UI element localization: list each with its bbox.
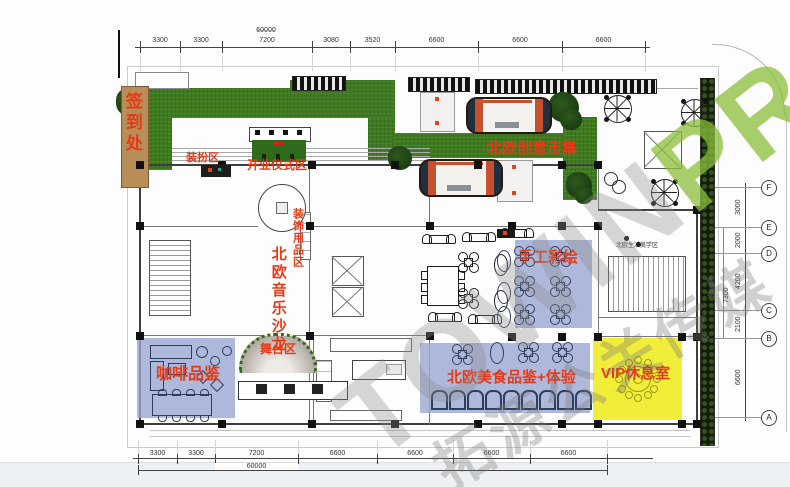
door-core [276, 202, 288, 214]
zone-label-lifestyle: 北欧生活美学区 [616, 240, 658, 249]
table [556, 310, 565, 319]
truck-roof-stripe [482, 100, 532, 103]
column [678, 333, 686, 341]
planting-bed [408, 77, 470, 92]
chair [524, 228, 534, 238]
dim-value-right: 6600 [735, 338, 742, 417]
stage-banner [274, 142, 284, 145]
dim-extension [312, 55, 313, 71]
chair [158, 389, 167, 396]
column [391, 161, 399, 169]
column [426, 332, 434, 340]
site-corner-mark [118, 30, 120, 78]
chair [486, 232, 496, 242]
coffee-machine [312, 384, 323, 394]
dim-extension [562, 55, 563, 71]
truss-light [269, 130, 274, 135]
dim-value-top: 6600 [478, 37, 562, 44]
dim-value-bottom: 6600 [530, 450, 607, 457]
staircase [149, 240, 191, 316]
chair [703, 121, 708, 126]
dim-value-bottom: 3300 [177, 450, 215, 457]
chair [172, 415, 181, 422]
dim-extension [645, 55, 646, 71]
chair [452, 312, 462, 322]
column [474, 420, 482, 428]
dim-line-top [135, 47, 650, 48]
column [558, 161, 566, 169]
column [558, 333, 566, 341]
dim-value-top: 3300 [140, 37, 180, 44]
table [464, 258, 473, 267]
column [306, 222, 314, 230]
dim-tick [607, 465, 608, 475]
planting-bed [292, 76, 346, 91]
column [308, 420, 316, 428]
round-table [196, 346, 208, 358]
column [306, 332, 314, 340]
vip-chair [650, 385, 658, 393]
dim-line-right [745, 183, 746, 421]
column [391, 420, 399, 428]
coffee-machine [284, 384, 295, 394]
column [558, 420, 566, 428]
dim-value-bottom: 6600 [377, 450, 453, 457]
grid-bubble-B: B [761, 331, 777, 347]
chair [604, 95, 609, 100]
long-table [427, 266, 459, 306]
wall [304, 226, 598, 227]
column [693, 420, 701, 428]
truck-counter [495, 122, 519, 128]
wall [598, 164, 599, 210]
chair [703, 99, 708, 104]
oval-table [497, 282, 511, 304]
dim-value-bottom: 6600 [453, 450, 530, 457]
oval-table [497, 250, 511, 272]
truck-counter [447, 185, 471, 191]
dim-value-right: 4200 [735, 253, 742, 310]
chair [172, 389, 181, 396]
counter-marker [503, 231, 507, 235]
booth-seat [449, 390, 466, 410]
column [558, 222, 566, 230]
staircase [608, 256, 686, 312]
column [594, 333, 602, 341]
chair [673, 179, 678, 184]
exterior-step [150, 430, 690, 431]
dim-total-top: 60000 [236, 27, 296, 34]
column [474, 161, 482, 169]
table [558, 348, 567, 357]
chair [421, 283, 428, 292]
oval-table [490, 342, 504, 364]
chair [462, 232, 472, 242]
dim-value-right: 2100 [735, 310, 742, 338]
booth-marker [512, 191, 516, 195]
chair [651, 179, 656, 184]
wall [598, 209, 698, 211]
grid-bubble-C: C [761, 303, 777, 319]
chair [468, 314, 478, 324]
table [520, 282, 529, 291]
zone-label-sign-in: 签到处 [123, 92, 141, 155]
dim-tick [138, 465, 139, 475]
counter-marker [218, 168, 221, 171]
table [464, 294, 473, 303]
vip-chair [625, 391, 633, 399]
dim-extension [607, 440, 608, 454]
round-table [222, 346, 232, 356]
grid-bubble-A: A [761, 410, 777, 426]
floor-plan: 3300330072003080352066006600660060000330… [0, 0, 790, 487]
dim-extension [478, 55, 479, 71]
island-sink [386, 364, 402, 375]
column [136, 222, 144, 230]
column [508, 333, 516, 341]
zone-label-hand-painting: 手工彩绘 [518, 250, 578, 266]
truss-light [255, 130, 260, 135]
dim-extension [222, 55, 223, 71]
table [458, 350, 467, 359]
grid-bubble-F: F [761, 180, 777, 196]
vip-chair [634, 394, 642, 402]
column [218, 420, 226, 428]
chair [200, 389, 209, 396]
booth-seat [503, 390, 520, 410]
booth-seat [539, 390, 556, 410]
dim-value-bottom: 7200 [215, 450, 298, 457]
booth-marker [512, 165, 516, 169]
column [594, 161, 602, 169]
booth-seat [467, 390, 484, 410]
booth-seat [557, 390, 574, 410]
dim-value-top: 6600 [562, 37, 645, 44]
vip-chair [618, 385, 626, 393]
booth-marker [435, 97, 439, 101]
vip-chair [644, 391, 652, 399]
chair [200, 415, 209, 422]
zone-label-creative-market: 北欧创意市集 [487, 141, 577, 157]
column [693, 333, 701, 341]
dim-tick [645, 41, 646, 53]
booth-seat [431, 390, 448, 410]
chair [681, 121, 686, 126]
page-bottom-strip [0, 462, 790, 487]
dim-value-bottom: 3300 [138, 450, 177, 457]
dim-total-bottom: 60000 [215, 463, 298, 470]
chair [422, 234, 432, 244]
chair [604, 117, 609, 122]
dim-value-right: 2000 [735, 227, 742, 253]
sofa [150, 345, 192, 359]
site-edge-right [786, 112, 787, 432]
hedge-strip [700, 78, 715, 446]
table [556, 282, 565, 291]
truss-light [283, 130, 288, 135]
dim-value-bottom: 6600 [298, 450, 377, 457]
chair [651, 201, 656, 206]
grid-bubble-E: E [761, 220, 777, 236]
chair [158, 415, 167, 422]
chair [626, 95, 631, 100]
zone-label-stage: 舞台区 [260, 343, 296, 356]
zone-label-food-tasting: 北欧美食品鉴+体验 [447, 370, 576, 386]
wall [598, 317, 697, 318]
chair [626, 117, 631, 122]
tree [575, 186, 593, 204]
zone-label-dress-up: 装扮区 [186, 153, 219, 165]
turf-band [147, 118, 172, 170]
column [136, 420, 144, 428]
column [136, 332, 144, 340]
dim-extension [140, 55, 141, 71]
chair [186, 389, 195, 396]
chair [446, 234, 456, 244]
vip-chair [634, 356, 642, 364]
booth-seat [575, 390, 592, 410]
dining-table [152, 394, 212, 416]
tree [560, 108, 582, 130]
chair [186, 415, 195, 422]
wall [313, 336, 314, 424]
dim-line-bottom-total [138, 470, 607, 471]
dim-extension [350, 55, 351, 71]
exterior-step [150, 436, 690, 437]
chair [421, 271, 428, 280]
chair [421, 295, 428, 304]
column [678, 420, 686, 428]
kitchen-counter [330, 338, 412, 352]
dim-value-top: 3300 [180, 37, 222, 44]
dim-extension [180, 55, 181, 71]
oval-table [497, 306, 511, 328]
booth-seat [485, 390, 502, 410]
column [426, 222, 434, 230]
zone-label-coffee-tasting: 咖啡品鉴 [156, 367, 220, 384]
zone-label-opening-ceremony: 开业仪式区 [247, 159, 307, 172]
column [693, 206, 701, 214]
coffee-machine [256, 384, 267, 394]
booth-marker [435, 121, 439, 125]
zone-label-decor-supplies: 装饰用品区 [291, 208, 303, 268]
zone-label-music-salon: 北欧音乐沙龙 [270, 246, 286, 354]
column [136, 161, 144, 169]
dim-value-top: 6600 [395, 37, 478, 44]
dress-up-counter [201, 165, 231, 177]
wall [139, 226, 258, 227]
column [594, 420, 602, 428]
dim-value-top: 3520 [350, 37, 395, 44]
column [594, 222, 602, 230]
grid-bubble-D: D [761, 246, 777, 262]
dim-line-bottom [133, 458, 653, 459]
booth-seat [521, 390, 538, 410]
dim-value-right: 3000 [735, 187, 742, 227]
chair [681, 99, 686, 104]
zone-label-vip-lounge: VIP休息室 [601, 366, 670, 382]
column [308, 161, 316, 169]
dim-value-top: 7200 [222, 37, 312, 44]
table [520, 310, 529, 319]
truss-light [297, 130, 302, 135]
chair [428, 312, 438, 322]
dim-extension [395, 55, 396, 71]
site-corner-arc [712, 44, 785, 117]
chair [673, 201, 678, 206]
table [524, 348, 533, 357]
dim-value-top: 3080 [312, 37, 350, 44]
dim-value-right-extra: 7300 [723, 253, 730, 338]
deco-circle [612, 180, 626, 194]
counter-marker [208, 168, 212, 172]
round-table [210, 356, 220, 366]
